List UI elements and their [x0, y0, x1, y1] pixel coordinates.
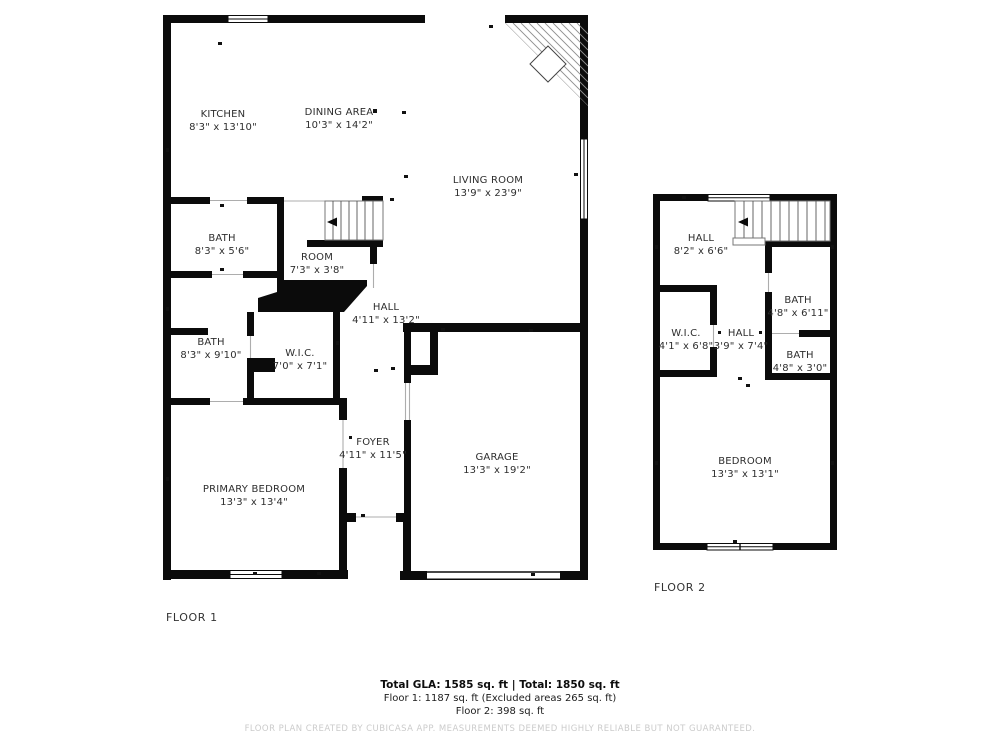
floor2-staircase: [733, 201, 830, 245]
room-dims: 13'9" x 23'9": [453, 188, 523, 201]
hatch-diamond: [530, 46, 566, 82]
room-dims: 8'3" x 13'10": [189, 122, 257, 135]
room-name: LIVING ROOM: [453, 175, 523, 188]
room-name: BEDROOM: [711, 456, 779, 469]
summary-floor2-area: Floor 2: 398 sq. ft: [0, 706, 1000, 717]
room-name: HALL: [352, 302, 420, 315]
room-name: BATH: [773, 350, 828, 363]
room-name: BATH: [767, 295, 828, 308]
room-label-floor1-kitchen: KITCHEN 8'3" x 13'10": [189, 109, 257, 134]
room-label-floor1-garage: GARAGE 13'3" x 19'2": [463, 452, 531, 477]
room-dims: 7'0" x 7'1": [273, 361, 328, 374]
room-dims: 8'2" x 6'6": [674, 246, 729, 259]
summary-floor1-area: Floor 1: 1187 sq. ft (Excluded areas 265…: [0, 693, 1000, 704]
room-label-floor1-bath-upper: BATH 8'3" x 5'6": [195, 233, 250, 258]
floor1-hatched-corner: [505, 23, 588, 106]
room-name: HALL: [674, 233, 729, 246]
room-name: GARAGE: [463, 452, 531, 465]
room-label-floor2-wic: W.I.C. 4'1" x 6'8": [659, 328, 714, 353]
floor2-tag: FLOOR 2: [654, 581, 706, 594]
room-name: PRIMARY BEDROOM: [203, 484, 305, 497]
room-label-floor1-bath-lower: BATH 8'3" x 9'10": [180, 337, 241, 362]
summary-total-gla: Total GLA: 1585 sq. ft | Total: 1850 sq.…: [0, 679, 1000, 691]
room-label-floor1-living-room: LIVING ROOM 13'9" x 23'9": [453, 175, 523, 200]
floor1-staircase: [325, 201, 383, 240]
room-label-floor2-bath-lower: BATH 4'8" x 3'0": [773, 350, 828, 375]
room-label-floor2-bath-upper: BATH 4'8" x 6'11": [767, 295, 828, 320]
room-label-floor1-dining-area: DINING AREA 10'3" x 14'2": [305, 107, 374, 132]
room-dims: 8'3" x 5'6": [195, 246, 250, 259]
room-label-floor1-room: ROOM 7'3" x 3'8": [290, 252, 345, 277]
floor1-garage-door: [427, 572, 560, 580]
room-name: HALL: [714, 328, 769, 341]
room-name: FOYER: [339, 437, 407, 450]
room-dims: 10'3" x 14'2": [305, 120, 374, 133]
room-dims: 4'11" x 11'5": [339, 450, 407, 463]
room-dims: 13'3" x 19'2": [463, 465, 531, 478]
room-dims: 4'8" x 6'11": [767, 308, 828, 321]
floor-plan-image: KITCHEN 8'3" x 13'10" DINING AREA 10'3" …: [0, 0, 1000, 750]
room-label-floor2-bedroom: BEDROOM 13'3" x 13'1": [711, 456, 779, 481]
room-dims: 8'3" x 9'10": [180, 350, 241, 363]
floor1-tag: FLOOR 1: [166, 611, 218, 624]
room-dims: 13'3" x 13'4": [203, 497, 305, 510]
floor-plan-drawing: [0, 0, 1000, 750]
room-dims: 3'9" x 7'4": [714, 341, 769, 354]
room-dims: 7'3" x 3'8": [290, 265, 345, 278]
room-label-floor2-hall-lower: HALL 3'9" x 7'4": [714, 328, 769, 353]
room-name: W.I.C.: [273, 348, 328, 361]
room-dims: 4'8" x 3'0": [773, 363, 828, 376]
room-name: BATH: [180, 337, 241, 350]
room-label-floor1-hall: HALL 4'11" x 13'2": [352, 302, 420, 327]
cubicasa-watermark: FLOOR PLAN CREATED BY CUBICASA APP. MEAS…: [0, 724, 1000, 734]
room-name: BATH: [195, 233, 250, 246]
room-label-floor2-hall-upper: HALL 8'2" x 6'6": [674, 233, 729, 258]
room-dims: 13'3" x 13'1": [711, 469, 779, 482]
room-name: DINING AREA: [305, 107, 374, 120]
room-label-floor1-wic: W.I.C. 7'0" x 7'1": [273, 348, 328, 373]
room-dims: 4'11" x 13'2": [352, 315, 420, 328]
room-label-floor1-primary-bedroom: PRIMARY BEDROOM 13'3" x 13'4": [203, 484, 305, 509]
room-dims: 4'1" x 6'8": [659, 341, 714, 354]
room-name: ROOM: [290, 252, 345, 265]
room-name: W.I.C.: [659, 328, 714, 341]
room-name: KITCHEN: [189, 109, 257, 122]
room-label-floor1-foyer: FOYER 4'11" x 11'5": [339, 437, 407, 462]
